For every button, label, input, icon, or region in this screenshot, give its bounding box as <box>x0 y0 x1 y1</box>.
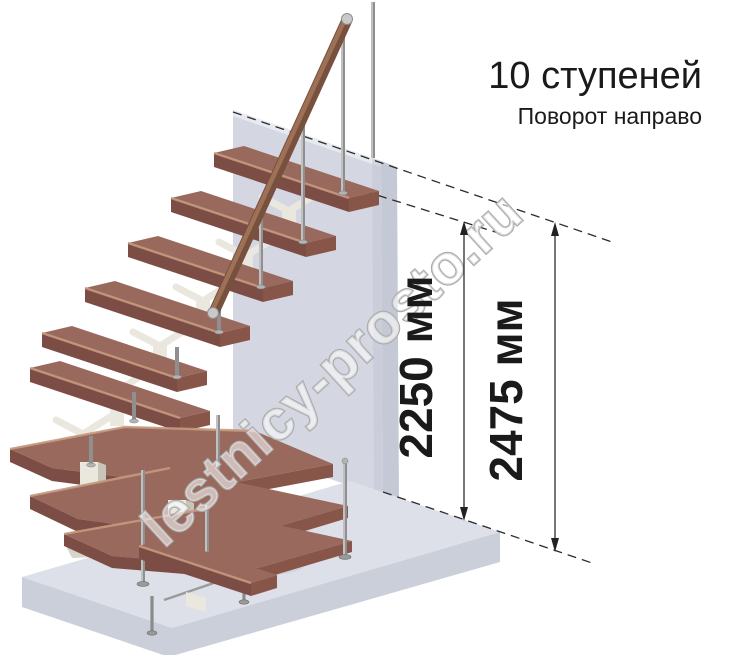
rod-foot <box>137 582 149 587</box>
baluster-collar <box>257 285 266 289</box>
baluster-collar <box>339 191 348 195</box>
arrow-up-icon <box>551 222 559 236</box>
dimension-2475: 2475 мм <box>480 222 559 552</box>
baluster-collar <box>130 419 139 423</box>
baluster-collar <box>299 240 308 244</box>
staircase-diagram: lestnicy-prosto.ru 2250 мм 2475 мм 10 ст… <box>0 0 744 655</box>
baluster-collar <box>215 330 224 334</box>
arrow-down-icon <box>551 538 559 552</box>
baluster-collar <box>173 375 182 379</box>
baluster-collar <box>87 463 96 467</box>
staircase-diagram-page: lestnicy-prosto.ru 2250 мм 2475 мм 10 ст… <box>0 0 744 655</box>
dimension-label-inner: 2250 мм <box>390 275 442 458</box>
rod-collar <box>342 458 348 464</box>
title-block: 10 ступеней Поворот направо <box>488 55 702 129</box>
page-subtitle: Поворот направо <box>518 103 702 129</box>
handrail-top-cap <box>342 14 353 25</box>
handrail-end-cap <box>208 308 219 319</box>
rod-foot <box>339 555 351 560</box>
leg-foot <box>147 631 157 635</box>
dimension-label-outer: 2475 мм <box>480 298 532 481</box>
leg-foot <box>239 600 249 604</box>
page-title: 10 ступеней <box>488 55 702 97</box>
